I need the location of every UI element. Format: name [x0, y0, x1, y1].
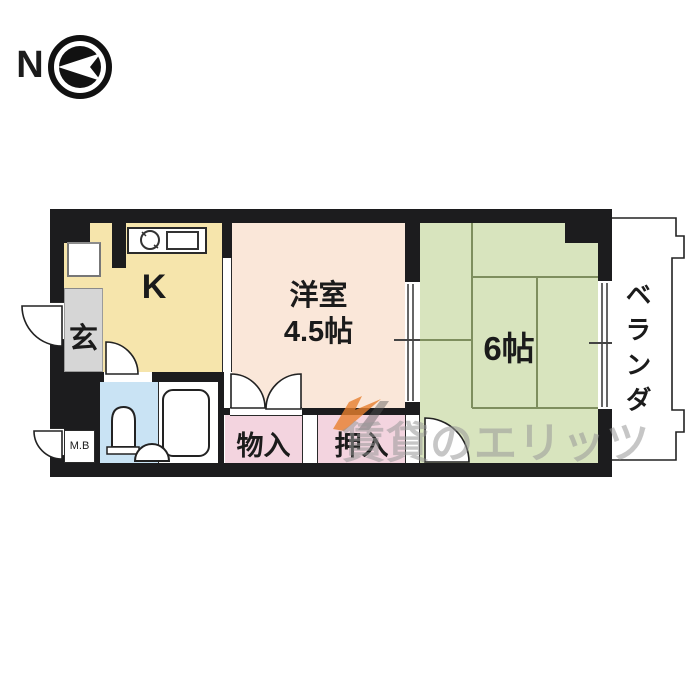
window-tatami-veranda [598, 281, 612, 409]
wall-west-tatami-upper [405, 223, 420, 282]
floor-plan: N [0, 0, 700, 700]
wall-left-upper [50, 209, 64, 302]
opening-entrance-door [50, 302, 64, 340]
bathroom-wet-area [100, 382, 158, 463]
wall-top [50, 209, 612, 223]
label-tatami-room-size: 6帖 [420, 322, 598, 370]
storage-folding-door-track [230, 407, 302, 416]
label-kitchen: K [75, 268, 233, 307]
wall-left-lower [50, 456, 64, 477]
wall-left-mid [50, 340, 64, 428]
label-western-room-size: 4.5帖 [232, 308, 405, 350]
compass-north-label: N [10, 44, 50, 87]
wall-right-upper [598, 209, 612, 281]
label-storage: 物入 [225, 424, 302, 463]
wall-kitchen-stub [112, 223, 126, 268]
wall-tatami-notch [565, 223, 598, 243]
bathroom-tub-area [158, 382, 218, 463]
north-compass-icon [51, 38, 109, 96]
wall-k-west-upper [222, 223, 232, 258]
kitchen-counter [127, 227, 207, 254]
opening-bath-door [104, 372, 152, 382]
wall-kitchen-corner [64, 223, 90, 243]
label-entrance: 玄 [64, 315, 103, 357]
watermark-text: 賃貸のエリッツ [342, 409, 650, 471]
opening-meterbox-door [50, 428, 64, 456]
partition-storage-closet [302, 415, 318, 463]
label-meter-box: M.B [64, 440, 95, 452]
